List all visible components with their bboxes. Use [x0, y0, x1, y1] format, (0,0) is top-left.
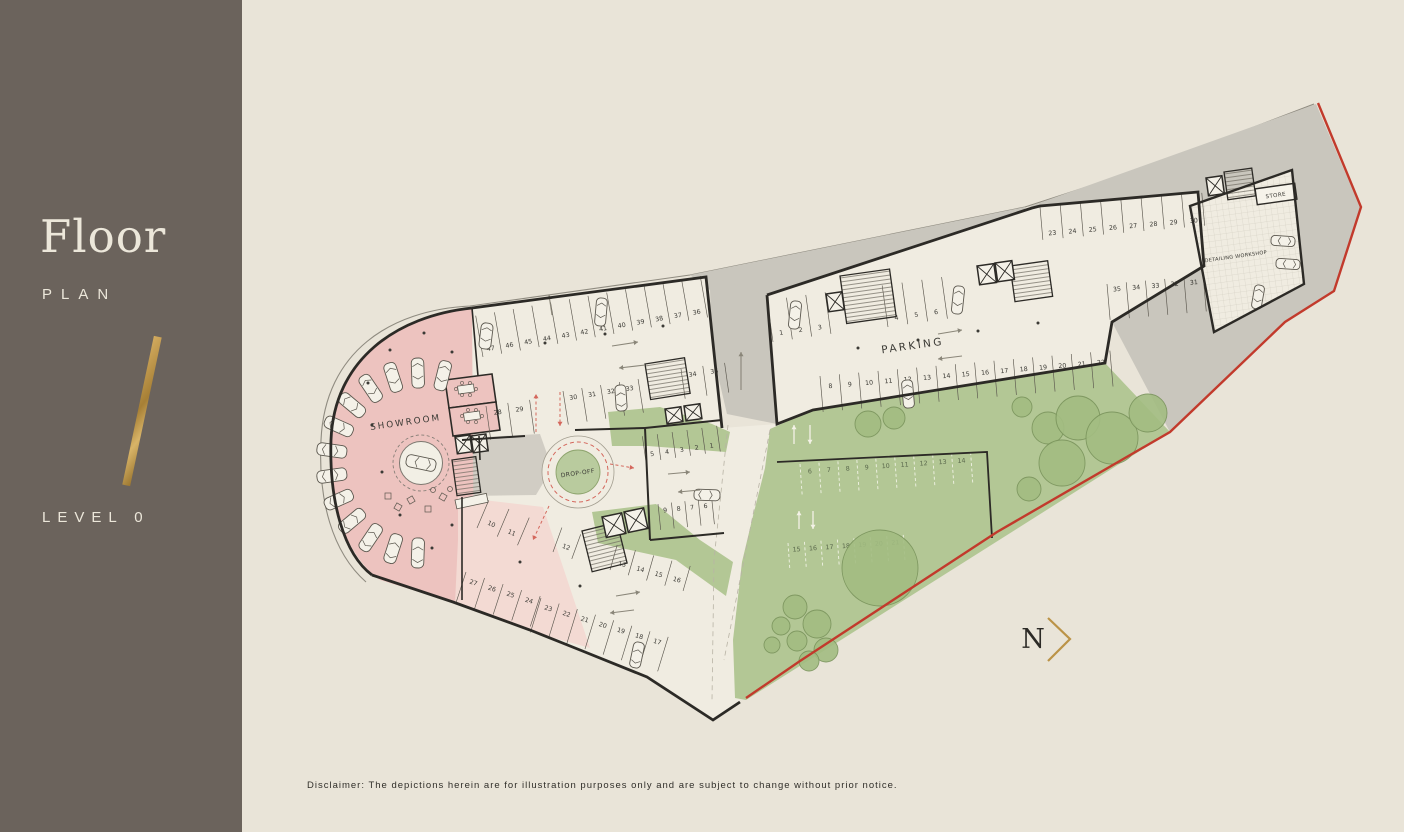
svg-text:7: 7 — [690, 504, 695, 511]
svg-text:N: N — [1021, 624, 1045, 655]
elevator-icon — [455, 435, 472, 454]
svg-text:37: 37 — [673, 312, 682, 320]
svg-text:24: 24 — [1068, 228, 1077, 236]
gold-slash-decoration — [122, 336, 161, 486]
svg-text:14: 14 — [942, 373, 951, 381]
elevator-icon — [602, 513, 626, 538]
car-icon — [594, 298, 607, 327]
svg-text:19: 19 — [1039, 364, 1048, 372]
svg-text:16: 16 — [981, 369, 990, 377]
svg-text:46: 46 — [505, 342, 514, 350]
svg-text:9: 9 — [663, 507, 668, 514]
car-icon — [951, 286, 965, 315]
svg-text:9: 9 — [865, 464, 869, 471]
svg-text:29: 29 — [1169, 219, 1178, 227]
svg-text:30: 30 — [569, 394, 578, 402]
svg-text:34: 34 — [1132, 284, 1141, 292]
svg-text:12: 12 — [919, 460, 927, 468]
car-icon — [788, 301, 802, 330]
tree-icon — [883, 407, 905, 429]
meeting-rooms — [445, 374, 500, 436]
elevator-icon — [1206, 176, 1224, 196]
sidebar: Floor PLAN LEVEL 0 — [0, 0, 242, 832]
car-icon — [694, 489, 720, 501]
svg-text:34: 34 — [688, 371, 697, 379]
tree-icon — [842, 530, 918, 606]
stairs-icon — [1010, 261, 1053, 302]
svg-text:28: 28 — [493, 409, 502, 417]
svg-text:40: 40 — [617, 322, 626, 330]
svg-text:10: 10 — [865, 379, 874, 387]
tree-icon — [1012, 397, 1032, 417]
svg-text:29: 29 — [515, 406, 524, 414]
svg-text:27: 27 — [1129, 223, 1138, 231]
tree-icon — [764, 637, 780, 653]
elevator-icon — [684, 404, 702, 421]
sidebar-level-label: LEVEL 0 — [42, 509, 150, 526]
disclaimer-text: Disclaimer: The depictions herein are fo… — [307, 780, 898, 791]
car-icon — [1276, 258, 1301, 270]
north-indicator: N — [1021, 618, 1070, 661]
svg-text:26: 26 — [1109, 224, 1118, 232]
svg-text:10: 10 — [882, 463, 890, 471]
car-icon — [1271, 235, 1296, 247]
svg-text:44: 44 — [542, 335, 551, 343]
stairs-icon — [645, 358, 690, 400]
svg-text:28: 28 — [1149, 221, 1158, 229]
svg-text:33: 33 — [1151, 282, 1160, 290]
svg-text:13: 13 — [923, 374, 932, 382]
svg-text:8: 8 — [846, 466, 850, 473]
svg-text:11: 11 — [884, 378, 893, 386]
elevator-icon — [665, 407, 683, 424]
svg-text:16: 16 — [809, 545, 817, 553]
svg-text:35: 35 — [1113, 286, 1122, 294]
svg-text:14: 14 — [957, 457, 965, 465]
car-icon — [478, 322, 493, 349]
svg-text:17: 17 — [825, 544, 833, 552]
svg-text:31: 31 — [588, 391, 597, 399]
car-icon — [615, 385, 628, 412]
svg-text:6: 6 — [808, 468, 812, 475]
svg-text:13: 13 — [938, 459, 946, 467]
elevator-icon — [995, 261, 1014, 282]
svg-text:25: 25 — [1088, 226, 1097, 234]
north-chevron-icon — [1048, 618, 1070, 661]
svg-text:7: 7 — [827, 467, 831, 474]
svg-text:33: 33 — [625, 385, 634, 393]
svg-text:43: 43 — [561, 332, 570, 340]
sidebar-subtitle: PLAN — [42, 286, 117, 303]
tree-icon — [783, 595, 807, 619]
tree-icon — [772, 617, 790, 635]
svg-text:8: 8 — [676, 506, 681, 513]
svg-text:8: 8 — [828, 383, 833, 390]
tree-icon — [855, 411, 881, 437]
elevator-icon — [826, 292, 844, 312]
svg-text:11: 11 — [900, 461, 908, 469]
tree-icon — [1129, 394, 1167, 432]
tree-icon — [1039, 440, 1085, 486]
svg-text:6: 6 — [703, 503, 708, 510]
svg-text:32: 32 — [606, 388, 615, 396]
car-icon — [411, 538, 425, 568]
tree-icon — [803, 610, 831, 638]
car-icon — [411, 358, 425, 388]
svg-text:15: 15 — [792, 546, 800, 554]
svg-text:15: 15 — [961, 371, 970, 379]
elevator-icon — [624, 508, 648, 533]
svg-text:17: 17 — [1000, 368, 1009, 376]
svg-text:23: 23 — [1048, 230, 1057, 238]
svg-text:36: 36 — [692, 309, 701, 317]
sidebar-title: Floor — [40, 210, 166, 263]
svg-text:45: 45 — [524, 338, 533, 346]
svg-text:18: 18 — [1019, 366, 1028, 374]
stairs-icon — [452, 457, 481, 496]
svg-text:38: 38 — [655, 315, 664, 323]
tree-icon — [1017, 477, 1041, 501]
elevator-icon — [977, 264, 996, 285]
stairs-icon — [840, 269, 896, 323]
svg-text:42: 42 — [580, 328, 589, 336]
tree-icon — [787, 631, 807, 651]
svg-text:39: 39 — [636, 318, 645, 326]
svg-text:31: 31 — [1190, 279, 1199, 287]
svg-text:9: 9 — [848, 381, 853, 388]
